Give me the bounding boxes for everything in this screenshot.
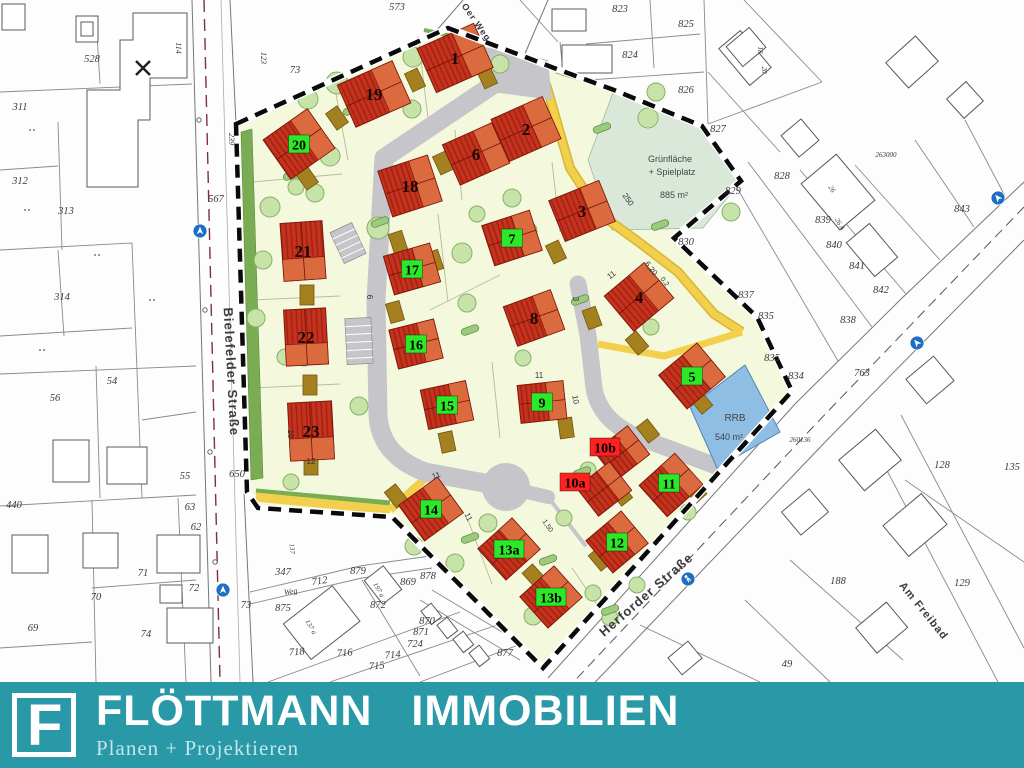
parcel-label: 135	[1004, 462, 1020, 473]
tree-icon	[647, 83, 665, 101]
lot-number-10a: 10a	[565, 477, 586, 492]
brand-name: FLÖTTMANN IMMOBILIEN	[96, 690, 679, 733]
lot-number-10b: 10b	[594, 442, 616, 457]
site-plan-map: 5283113123133145672391141237357356545544…	[0, 0, 1024, 682]
parcel-label: 837	[738, 290, 755, 301]
lot-number-16: 16	[409, 339, 423, 354]
logo-letter: F	[27, 699, 62, 752]
parcel-label: 871	[413, 627, 429, 638]
parcel-label: 63	[185, 502, 196, 513]
parcel-label: 69	[28, 623, 39, 634]
tree-icon	[452, 243, 472, 263]
lot-number-18: 18	[402, 177, 419, 196]
lot-number-20: 20	[292, 139, 306, 154]
parcel-label: 312	[11, 176, 29, 187]
lot-number-15: 15	[440, 400, 454, 415]
parcel-label: 834	[788, 371, 805, 382]
parcel-label: 870	[419, 616, 436, 627]
parcel-label: 62	[191, 522, 202, 533]
parcel-label: 188	[830, 576, 847, 587]
garage-icon	[558, 417, 575, 439]
parcel-label: 827	[710, 124, 727, 135]
parcel-label: 18	[756, 47, 764, 55]
tree-icon	[585, 585, 601, 601]
lot-number-4: 4	[635, 288, 644, 307]
parcel-label: 440	[6, 500, 23, 511]
tree-icon	[503, 189, 521, 207]
garage-icon	[303, 375, 317, 395]
area-label: + Spielplatz	[649, 167, 696, 177]
parcel-label: 311	[12, 102, 28, 113]
parcel-label: 724	[407, 639, 424, 650]
parcel-label: 72	[189, 583, 200, 594]
parcel-label: 842	[873, 285, 890, 296]
parcel-label: 313	[57, 206, 74, 217]
parcel-label: 877	[497, 648, 514, 659]
lot-number-23: 23	[303, 422, 320, 441]
lot-number-7: 7	[509, 233, 516, 248]
area-label: 885 m²	[660, 190, 688, 200]
parcel-label: 650	[229, 469, 246, 480]
tree-icon	[638, 108, 658, 128]
tree-icon	[722, 203, 740, 221]
lot-number-13b: 13b	[540, 592, 562, 607]
area-label: 540 m²	[715, 432, 743, 442]
tree-icon	[458, 294, 476, 312]
parcel-label: 835	[764, 353, 780, 364]
lot-number-6: 6	[472, 145, 481, 164]
parcel-label: 763	[854, 368, 870, 379]
parcel-label: 56	[50, 393, 61, 404]
lot-number-8: 8	[530, 309, 539, 328]
area-label: Grünfläche	[648, 154, 692, 164]
parcel-label: 712	[311, 575, 329, 588]
parcel-label: 838	[840, 315, 857, 326]
parcel-label: 718	[288, 646, 305, 658]
parcel-label: 869	[400, 577, 417, 588]
parcel-label: 137	[288, 543, 297, 555]
tree-icon	[491, 55, 509, 73]
parcel-label: 129	[954, 578, 971, 589]
dimension-label: 6	[365, 295, 374, 300]
parcel-label: 843	[954, 204, 970, 215]
turning-circle	[482, 463, 530, 511]
parcel-label: 716	[336, 647, 353, 659]
lot-number-5: 5	[689, 371, 696, 386]
parcel-label: 123	[259, 52, 268, 64]
parcel-label: 872	[370, 600, 387, 611]
parcel-label: Weg	[283, 586, 298, 597]
parcel-label: 239	[227, 133, 236, 145]
tree-icon	[247, 309, 265, 327]
tree-icon	[350, 397, 368, 415]
direction-arrow-icon	[216, 583, 230, 597]
parcel-label: 70	[91, 592, 102, 603]
parcel-label: 128	[934, 460, 951, 471]
parcel-label: 878	[420, 571, 437, 582]
tree-icon	[283, 474, 299, 490]
parcel-label: 71	[138, 568, 149, 579]
lot-number-21: 21	[295, 242, 312, 261]
parcel-label: 573	[389, 2, 405, 13]
parcel-label: 347	[274, 567, 292, 578]
tree-icon	[254, 251, 272, 269]
parcel-label: 49	[782, 659, 793, 670]
parcel-label: 263000	[876, 151, 898, 159]
lot-number-14: 14	[424, 504, 438, 519]
parcel-label: 73	[241, 600, 252, 611]
parcel-label: 839	[815, 215, 832, 226]
lot-number-12: 12	[610, 537, 624, 552]
lot-number-1: 1	[451, 49, 460, 68]
parcel-label: 114	[174, 42, 183, 53]
parcel-label: 829	[725, 186, 742, 197]
tree-icon	[260, 197, 280, 217]
parcel-label: 841	[849, 261, 865, 272]
dimension-label: 11	[535, 371, 544, 380]
dimension-label: 3	[571, 297, 580, 302]
direction-arrow-icon	[193, 224, 207, 238]
parcel-label: 879	[350, 566, 367, 577]
parcel-label: 55	[180, 471, 191, 482]
dimension-label: 16	[286, 430, 295, 439]
parcel-label: 73	[290, 65, 301, 76]
parcel-label: 20	[760, 67, 768, 75]
tree-icon	[515, 350, 531, 366]
lot-number-13a: 13a	[499, 544, 520, 559]
lot-number-22: 22	[298, 328, 315, 347]
parcel-label: 875	[275, 603, 291, 614]
lot-number-17: 17	[405, 264, 419, 279]
brand-bar: F FLÖTTMANN IMMOBILIEN Planen + Projekti…	[0, 682, 1024, 768]
parcel-label: 828	[774, 171, 791, 182]
parcel-label: 826	[678, 85, 695, 96]
garage-icon	[300, 285, 314, 305]
lot-number-3: 3	[578, 202, 587, 221]
lot-number-11: 11	[662, 478, 675, 493]
lot-number-19: 19	[366, 85, 383, 104]
parcel-label: 835	[758, 311, 774, 322]
brand-tagline: Planen + Projektieren	[96, 736, 679, 761]
parcel-label: 567	[208, 194, 225, 205]
tree-icon	[469, 206, 485, 222]
parcel-label: 314	[53, 292, 71, 303]
parcel-label: 260136	[790, 436, 812, 444]
dimension-label: 12	[307, 457, 316, 466]
parcel-label: 830	[678, 237, 695, 248]
lot-number-2: 2	[522, 120, 531, 139]
parcel-label: 824	[622, 50, 639, 61]
tree-icon	[479, 514, 497, 532]
lot-number-9: 9	[539, 397, 546, 412]
area-label: RRB	[724, 413, 745, 424]
parcel-label: 528	[84, 54, 101, 65]
company-logo: F	[12, 693, 76, 757]
parcel-label: 840	[826, 240, 843, 251]
site-plan-page: 5283113123133145672391141237357356545544…	[0, 0, 1024, 768]
parcel-label: 825	[678, 19, 694, 30]
parcel-label: 823	[612, 4, 628, 15]
parcel-label: 714	[384, 649, 401, 661]
parcel-label: 54	[107, 376, 118, 387]
parcel-label: 715	[368, 660, 385, 672]
parcel-label: 74	[141, 629, 152, 640]
tree-icon	[556, 510, 572, 526]
